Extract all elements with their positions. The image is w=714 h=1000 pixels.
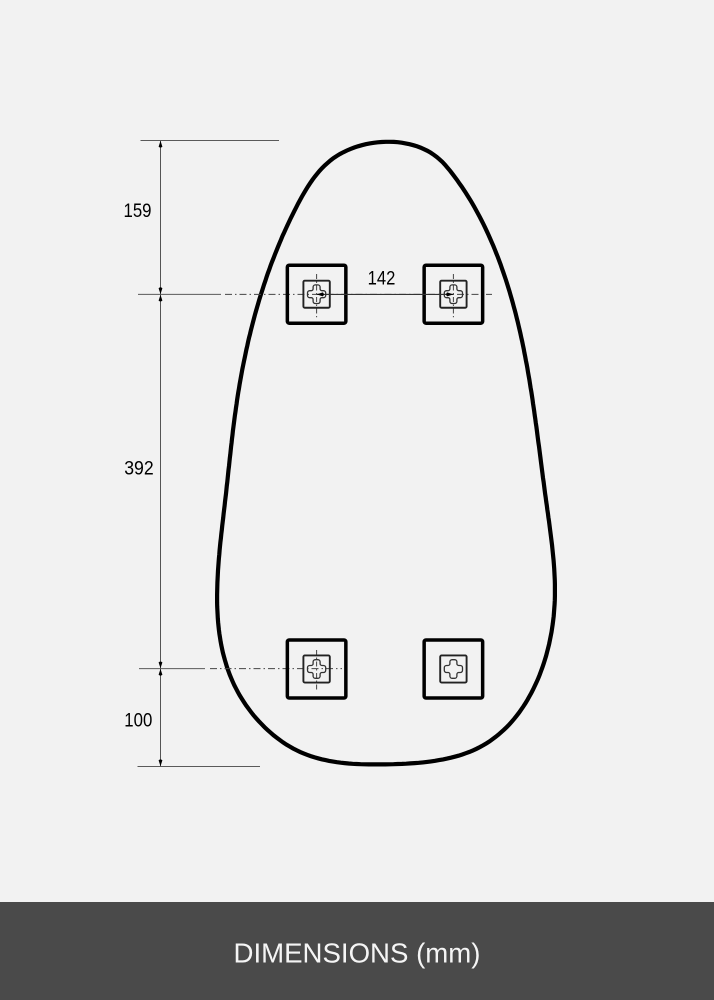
svg-text:159: 159	[124, 200, 152, 222]
svg-text:DIMENSIONS (mm): DIMENSIONS (mm)	[234, 938, 481, 969]
svg-text:100: 100	[124, 710, 152, 732]
svg-text:142: 142	[368, 268, 396, 290]
svg-text:392: 392	[124, 458, 154, 480]
